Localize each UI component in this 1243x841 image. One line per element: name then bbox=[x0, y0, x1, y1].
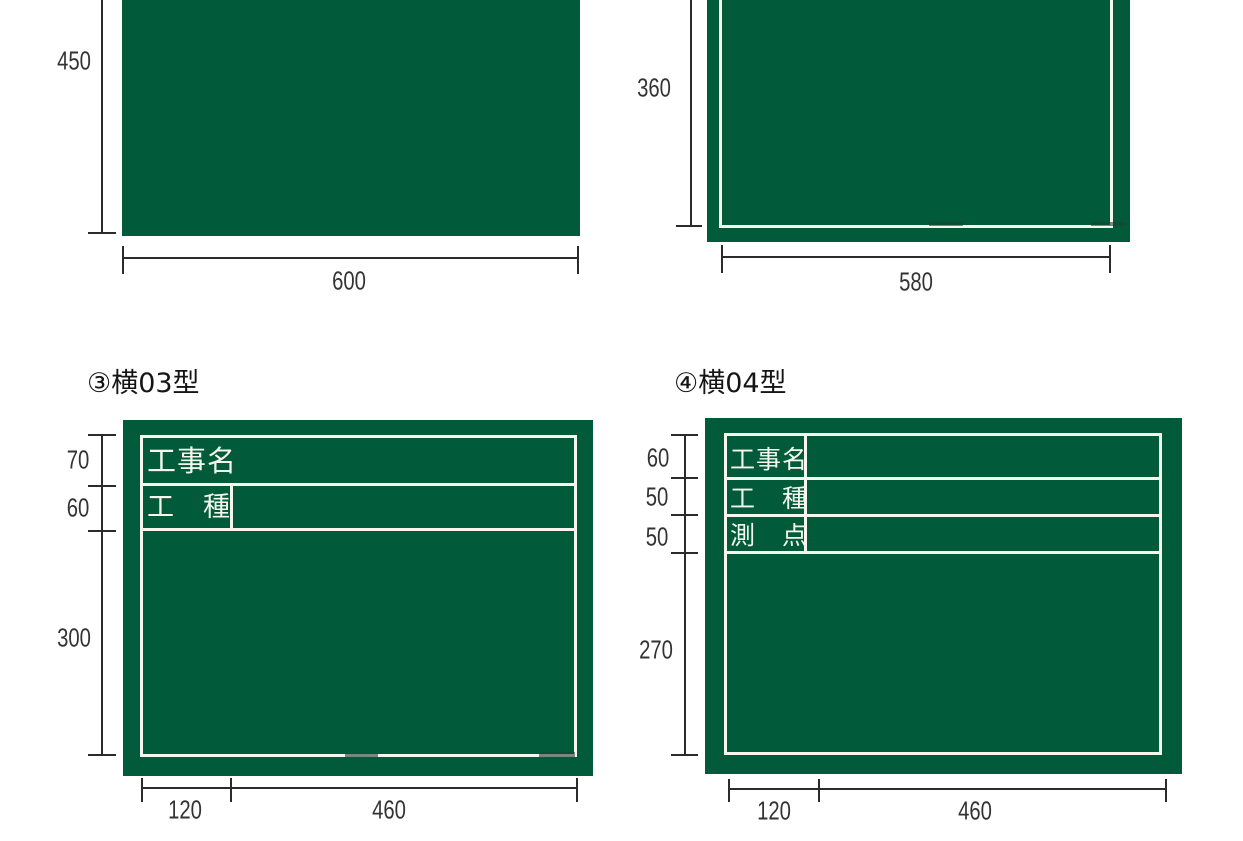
dimension-tick bbox=[721, 245, 723, 273]
height-dimension-line bbox=[684, 434, 686, 756]
row-divider-line bbox=[727, 551, 1159, 554]
field-label-sokuten: 測 点 bbox=[730, 523, 808, 548]
width-dim-label: 120 bbox=[757, 796, 791, 827]
catalog-page: 450 600 360 580 ③横03型 工事名 工 種 70 60 300 … bbox=[0, 0, 1243, 841]
dimension-tick bbox=[576, 778, 578, 802]
row-divider-line bbox=[143, 483, 574, 486]
width-dimension-line bbox=[142, 787, 577, 789]
dimension-tick bbox=[676, 225, 702, 227]
dimension-tick bbox=[1165, 779, 1167, 802]
height-dim-label: 60 bbox=[647, 443, 670, 474]
height-dim-label: 70 bbox=[67, 445, 90, 476]
dimension-tick bbox=[141, 778, 143, 802]
width-dim-label: 460 bbox=[372, 795, 406, 826]
field-label-koushu: 工 種 bbox=[147, 494, 231, 521]
height-dim-label: 60 bbox=[67, 493, 90, 524]
board-inner-border bbox=[719, 0, 1113, 228]
height-dim-label: 50 bbox=[646, 522, 669, 553]
field-label-koujimei: 工事名 bbox=[730, 447, 808, 472]
dimension-tick bbox=[671, 514, 698, 516]
width-dimension-line bbox=[123, 257, 579, 259]
height-dimension-line bbox=[101, 434, 103, 756]
width-dimension-line bbox=[729, 788, 1166, 790]
blackboard-plain bbox=[122, 0, 580, 236]
width-dimension-line bbox=[722, 256, 1110, 258]
dimension-tick bbox=[577, 246, 579, 274]
width-dim-label: 120 bbox=[168, 795, 202, 826]
fine-print-mark bbox=[345, 753, 378, 757]
dimension-tick bbox=[88, 530, 116, 532]
dimension-tick bbox=[818, 779, 820, 802]
height-dim-label: 360 bbox=[637, 73, 671, 104]
height-dimension-line bbox=[101, 0, 103, 234]
field-label-koujimei: 工事名 bbox=[147, 447, 237, 476]
dimension-tick bbox=[88, 485, 116, 487]
fine-print-mark bbox=[1091, 222, 1126, 226]
dimension-tick bbox=[122, 246, 124, 274]
row-divider-line bbox=[143, 528, 574, 531]
dimension-tick bbox=[671, 552, 698, 554]
fine-print-mark bbox=[929, 222, 963, 226]
height-dimension-line bbox=[690, 0, 692, 227]
width-dim-label: 580 bbox=[899, 267, 933, 298]
dimension-tick bbox=[230, 778, 232, 802]
board-title: ④横04型 bbox=[674, 370, 787, 397]
dimension-tick bbox=[671, 754, 698, 756]
dimension-tick bbox=[671, 434, 698, 436]
row-divider-line bbox=[727, 477, 1159, 480]
dimension-tick bbox=[671, 477, 698, 479]
dimension-tick bbox=[728, 779, 730, 802]
width-dim-label: 600 bbox=[332, 266, 366, 297]
height-dim-label: 300 bbox=[57, 623, 91, 654]
height-dim-label: 50 bbox=[646, 482, 669, 513]
dimension-tick bbox=[88, 754, 116, 756]
height-dim-label: 270 bbox=[639, 635, 673, 666]
board-inner-border bbox=[724, 433, 1162, 755]
board-title: ③横03型 bbox=[87, 370, 200, 397]
field-label-koushu: 工 種 bbox=[730, 486, 808, 511]
width-dim-label: 460 bbox=[958, 796, 992, 827]
dimension-tick bbox=[1109, 245, 1111, 273]
row-divider-line bbox=[727, 514, 1159, 517]
fine-print-mark bbox=[539, 752, 575, 757]
dimension-tick bbox=[88, 434, 116, 436]
dimension-tick bbox=[88, 232, 116, 234]
height-dim-label: 450 bbox=[57, 46, 91, 77]
